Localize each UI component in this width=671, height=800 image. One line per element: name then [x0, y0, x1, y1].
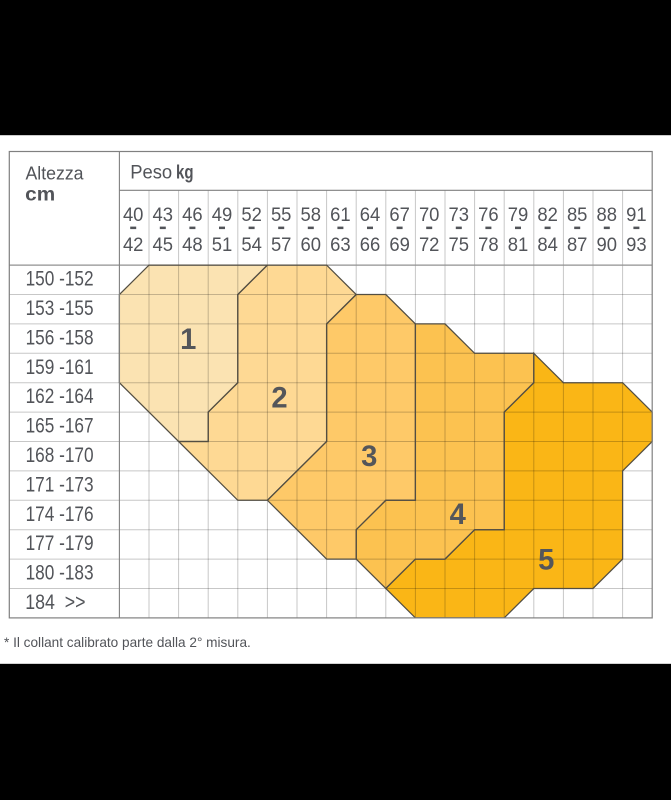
- svg-text:42: 42: [123, 234, 144, 256]
- svg-text:76: 76: [478, 204, 499, 226]
- svg-text:49: 49: [212, 204, 233, 226]
- svg-text:84: 84: [537, 234, 558, 256]
- svg-text:75: 75: [449, 234, 470, 256]
- svg-text:58: 58: [301, 204, 322, 226]
- svg-text:67: 67: [389, 204, 410, 226]
- svg-text:48: 48: [182, 234, 203, 256]
- svg-text:72: 72: [419, 234, 440, 256]
- svg-text:171 -173: 171 -173: [26, 472, 94, 496]
- svg-text:46: 46: [182, 204, 203, 226]
- svg-text:3: 3: [361, 441, 377, 473]
- svg-text:cm: cm: [25, 184, 55, 206]
- svg-text:45: 45: [153, 234, 174, 256]
- svg-text:40: 40: [123, 204, 144, 226]
- svg-text:63: 63: [330, 234, 351, 256]
- svg-text:82: 82: [537, 204, 558, 226]
- svg-text:Altezza: Altezza: [26, 162, 85, 183]
- svg-text:5: 5: [538, 545, 554, 577]
- svg-text:88: 88: [597, 204, 618, 226]
- svg-text:156 -158: 156 -158: [26, 325, 94, 349]
- svg-text:kg: kg: [176, 162, 194, 183]
- svg-text:52: 52: [241, 204, 262, 226]
- svg-text:87: 87: [567, 234, 588, 256]
- svg-text:73: 73: [449, 204, 470, 226]
- svg-text:51: 51: [212, 234, 233, 256]
- svg-text:174 -176: 174 -176: [26, 502, 94, 526]
- svg-text:159 -161: 159 -161: [26, 355, 94, 379]
- svg-text:79: 79: [508, 204, 529, 226]
- svg-text:184 >>: 184 >>: [25, 590, 85, 614]
- svg-text:54: 54: [241, 234, 262, 256]
- svg-text:177 -179: 177 -179: [26, 531, 94, 555]
- svg-text:85: 85: [567, 204, 588, 226]
- svg-text:66: 66: [360, 234, 381, 256]
- svg-text:168 -170: 168 -170: [26, 443, 94, 467]
- svg-text:61: 61: [330, 204, 351, 226]
- svg-text:70: 70: [419, 204, 440, 226]
- svg-text:Peso: Peso: [130, 162, 172, 183]
- svg-text:43: 43: [153, 204, 174, 226]
- svg-text:91: 91: [626, 204, 647, 226]
- svg-text:162 -164: 162 -164: [26, 384, 94, 408]
- svg-text:165 -167: 165 -167: [26, 414, 94, 438]
- svg-text:81: 81: [508, 234, 529, 256]
- svg-text:153 -155: 153 -155: [26, 296, 94, 320]
- svg-text:90: 90: [597, 234, 618, 256]
- svg-text:2: 2: [271, 383, 287, 415]
- svg-text:93: 93: [626, 234, 647, 256]
- svg-text:55: 55: [271, 204, 292, 226]
- svg-text:60: 60: [301, 234, 322, 256]
- svg-text:64: 64: [360, 204, 381, 226]
- svg-text:* Il collant calibrato parte d: * Il collant calibrato parte dalla 2° mi…: [4, 635, 251, 650]
- svg-text:1: 1: [180, 324, 196, 356]
- svg-text:180 -183: 180 -183: [26, 561, 94, 585]
- svg-text:69: 69: [389, 234, 410, 256]
- svg-text:150 -152: 150 -152: [26, 267, 94, 291]
- svg-text:78: 78: [478, 234, 499, 256]
- svg-text:57: 57: [271, 234, 292, 256]
- svg-text:4: 4: [450, 499, 467, 531]
